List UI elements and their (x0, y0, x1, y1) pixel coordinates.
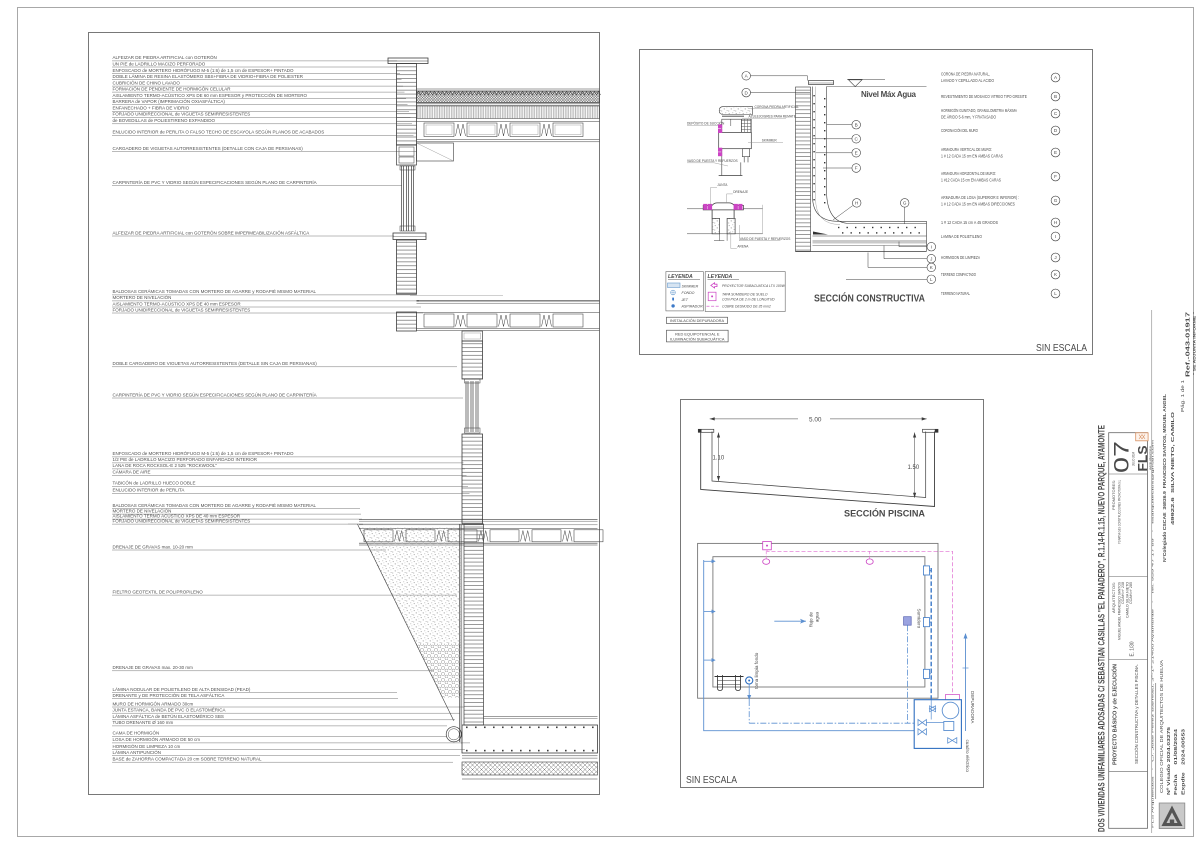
svg-text:ASPIRADOR: ASPIRADOR (681, 305, 704, 309)
svg-text:Fecha 01/08/2024: Fecha 01/08/2024 (1173, 729, 1179, 795)
svg-text:DOBLE CARGADERO DE VIGUETAS AU: DOBLE CARGADERO DE VIGUETAS AUTORRESISTE… (113, 361, 318, 366)
svg-text:ENFANECHADO + FIBRA DE VIDRIO: ENFANECHADO + FIBRA DE VIDRIO (113, 106, 190, 111)
svg-text:N°Colegiado CSCAE 36836.9 FR: N°Colegiado CSCAE 36836.9 FRANCISCO SANT… (1162, 394, 1167, 562)
svg-text:LÁMINA ASFÁLTICA de BETÚN ELAS: LÁMINA ASFÁLTICA de BETÚN ELASTOMÉRICO S… (113, 713, 224, 719)
svg-text:cuadro eléctrico: cuadro eléctrico (965, 740, 970, 773)
svg-text:ALFEIZAR DE PIEDRA ARTIFICIAL: ALFEIZAR DE PIEDRA ARTIFICIAL con GOTERÓ… (113, 54, 217, 60)
svg-text:REVESTIMIENTO DE MOSAICO VITRE: REVESTIMIENTO DE MOSAICO VITREO TIPO GRE… (941, 94, 1027, 99)
svg-text:1/2 PIE de LADRILLO MACIZO PER: 1/2 PIE de LADRILLO MACIZO PERFORADO ENF… (113, 457, 258, 462)
svg-text:1 # 12 CADA 15 cm EN AMBAS CAR: 1 # 12 CADA 15 cm EN AMBAS CARAS (941, 153, 1003, 158)
svg-text:CÁMARA DE AIRE: CÁMARA DE AIRE (113, 469, 151, 475)
svg-text:B: B (855, 122, 858, 127)
svg-text:JET: JET (681, 298, 689, 302)
svg-text:LÁMINA NODULAR DE POLIETILENO: LÁMINA NODULAR DE POLIETILENO DE ALTA DE… (113, 686, 251, 692)
svg-text:BASE de ZAHORRA COMPACTADA 20: BASE de ZAHORRA COMPACTADA 20 cm SOBRE T… (113, 757, 262, 762)
svg-text:PROYECTO BÁSICO y de EJECUCIÓN: PROYECTO BÁSICO y de EJECUCIÓN (1111, 664, 1119, 765)
svg-text:ARENA: ARENA (737, 245, 749, 249)
svg-text:Ref.-043-01917: Ref.-043-01917 (1186, 312, 1192, 377)
svg-text:TAPA SUMIDERO DE SUELO: TAPA SUMIDERO DE SUELO (722, 293, 768, 297)
svg-text:F: F (855, 166, 858, 171)
svg-text:DRENAJE DE GRAVAS max. 10-20 m: DRENAJE DE GRAVAS max. 10-20 mm (113, 544, 194, 549)
svg-text:FONDO: FONDO (682, 291, 695, 295)
svg-text:LAVADO Y CEPILLADO AL ACIDO: LAVADO Y CEPILLADO AL ACIDO (941, 78, 994, 83)
svg-text:J: J (930, 256, 932, 261)
svg-text:1 # 12 CADA 15 cm A 45 GRADOS: 1 # 12 CADA 15 cm A 45 GRADOS (941, 220, 998, 225)
svg-text:'' SE ADJUNTA INFORME '': '' SE ADJUNTA INFORME '' (1193, 312, 1197, 375)
svg-text:LÁMINA ANTIPUNCIÓN: LÁMINA ANTIPUNCIÓN (113, 749, 162, 755)
svg-text:SKIMMER: SKIMMER (682, 284, 699, 288)
svg-text:1.10: 1.10 (713, 456, 725, 462)
svg-text:SKIMMER: SKIMMER (762, 139, 778, 143)
svg-text:F: F (1054, 174, 1057, 179)
svg-text:JUNTA: JUNTA (717, 183, 728, 187)
svg-text:CORONACIÓN DEL MURO: CORONACIÓN DEL MURO (941, 127, 978, 133)
svg-text:FORJADO UNIDIRECCIONAL de VIGU: FORJADO UNIDIRECCIONAL de VIGUETAS SEMIR… (113, 112, 251, 117)
svg-text:DE ÁRIDO 5-6 mm, Y FRATASADO: DE ÁRIDO 5-6 mm, Y FRATASADO (941, 113, 996, 119)
svg-text:Nivel Máx Agua: Nivel Máx Agua (861, 90, 917, 99)
svg-text:G: G (903, 201, 907, 206)
svg-text:flujo de: flujo de (809, 612, 814, 627)
svg-text:CAMA DE HORMIGÓN: CAMA DE HORMIGÓN (113, 730, 160, 736)
svg-text:SIN ESCALA: SIN ESCALA (686, 775, 737, 786)
svg-text:07: 07 (1109, 441, 1133, 473)
svg-text:COBRE DESNUDO DE 35 mm2: COBRE DESNUDO DE 35 mm2 (722, 305, 771, 309)
svg-text:1 # 12 CADA 15 cm EN AMBAS DIR: 1 # 12 CADA 15 cm EN AMBAS DIRECCIONES (941, 201, 1015, 206)
svg-text:MORTERO DE NIVELACIÓN: MORTERO DE NIVELACIÓN (113, 294, 172, 300)
svg-text:DEPURADORA: DEPURADORA (970, 691, 975, 724)
svg-text:HORMIGON DE LIMPIEZA: HORMIGON DE LIMPIEZA (941, 255, 981, 260)
svg-text:SIN ESCALA: SIN ESCALA (1036, 343, 1087, 354)
svg-text:COLEGIO OFICIAL DE ARQUITECTOS: COLEGIO OFICIAL DE ARQUITECTOS DE HUELVA (1159, 659, 1164, 793)
svg-text:TERRENO NATURAL: TERRENO NATURAL (941, 291, 970, 296)
svg-text:FORMACIÓN DE PENDIENTE DE HORM: FORMACIÓN DE PENDIENTE DE HORMIGÓN CELUL… (113, 85, 232, 91)
svg-text:YGNATIA G&S CONSTRUCCIONES PRO: YGNATIA G&S CONSTRUCCIONES PROMOTORA S.L (1118, 480, 1122, 544)
svg-text:DRENANTE y DE PROTECCIÓN DE TE: DRENANTE y DE PROTECCIÓN DE TELA ASFÁLTI… (113, 692, 225, 698)
svg-text:1 #12 CADA 15 cm EN AMBAS CARA: 1 #12 CADA 15 cm EN AMBAS CARAS (941, 177, 1001, 182)
svg-text:LANA DE ROCA ROCKSOL-E 2 525 ": LANA DE ROCA ROCKSOL-E 2 525 "ROCKWOOL" (113, 463, 218, 468)
svg-text:toma limpia fondo: toma limpia fondo (754, 652, 759, 689)
svg-text:VASO DE PUESTA Y REFUERZOS: VASO DE PUESTA Y REFUERZOS (687, 159, 738, 163)
svg-text:L: L (930, 277, 933, 282)
svg-text:ILUMINACIÓN SUBACUÁTICA: ILUMINACIÓN SUBACUÁTICA (670, 336, 725, 341)
svg-text:ARMADURA VERTICAL DE MURO:: ARMADURA VERTICAL DE MURO: (941, 147, 992, 152)
svg-text:I: I (931, 244, 932, 249)
svg-text:E: E (855, 151, 858, 156)
svg-text:COAH nº 285: COAH nº 285 (1129, 582, 1133, 604)
svg-text:DRENAJE DE GRAVAS max. 20-30 m: DRENAJE DE GRAVAS max. 20-30 mm (113, 665, 194, 670)
svg-text:FORJADO UNIDIRECCIONAL de VIGU: FORJADO UNIDIRECCIONAL de VIGUETAS SEMIR… (113, 518, 251, 523)
svg-text:INSTALACIÓN DEPURADORA: INSTALACIÓN DEPURADORA (670, 318, 725, 323)
svg-text:49922.6 SILVA NIETO, CAMILO: 49922.6 SILVA NIETO, CAMILO (1170, 411, 1175, 525)
svg-text:LEYENDA: LEYENDA (668, 274, 693, 280)
svg-text:TUBO DRENANTE Ø 160 mm: TUBO DRENANTE Ø 160 mm (113, 720, 174, 725)
svg-text:B: B (1054, 94, 1057, 99)
svg-text:BARRERA de VAPOR (IMPRIMACIÓN: BARRERA de VAPOR (IMPRIMACIÓN OXIASFÁLTI… (113, 98, 226, 104)
svg-text:ENLUCIDO INTERIOR de PERLITA O: ENLUCIDO INTERIOR de PERLITA O FALSO TEC… (113, 129, 325, 135)
svg-text:DEPÓSITO DE SUCCIÓN: DEPÓSITO DE SUCCIÓN (687, 121, 725, 126)
svg-text:agua: agua (815, 612, 820, 623)
svg-text:1.50: 1.50 (908, 465, 920, 471)
svg-text:ARQUITECTOS:: ARQUITECTOS: (1111, 582, 1116, 613)
svg-text:ENFOSCADO de MORTERO HIDRÓFUGO: ENFOSCADO de MORTERO HIDRÓFUGO M-5 (1:6)… (113, 450, 294, 456)
svg-text:SECCIÓN CONSTRUCTIVA y DETALLE: SECCIÓN CONSTRUCTIVA y DETALLES PISCINA. (1133, 664, 1140, 764)
svg-text:HORMIGÓN GUNITADO, GRANULOMETR: HORMIGÓN GUNITADO, GRANULOMETRIA MÁXIMA (941, 107, 1018, 113)
svg-text:Nº Visado 2024.03275: Nº Visado 2024.03275 (1166, 727, 1172, 795)
svg-text:PROYECTOR SUBACUATICA LTX 100W: PROYECTOR SUBACUATICA LTX 100W (722, 284, 786, 288)
svg-text:BALDOSAS CERÁMICAS TOMADAS CON: BALDOSAS CERÁMICAS TOMADAS CON MORTERO D… (113, 288, 317, 294)
svg-text:CARGADERO DE VIGUETAS AUTORRES: CARGADERO DE VIGUETAS AUTORRESISTENTES (… (113, 146, 304, 151)
svg-text:JULIO 2024: JULIO 2024 (1132, 452, 1136, 466)
svg-text:FIELTRO GEOTEXTIL DE POLIPROPI: FIELTRO GEOTEXTIL DE POLIPROPILENO (113, 589, 204, 594)
svg-text:LEYENDA: LEYENDA (708, 274, 733, 280)
svg-text:L: L (1054, 291, 1057, 296)
svg-text:CORONA PIEDRA ARTIFICIAL: CORONA PIEDRA ARTIFICIAL (755, 105, 799, 109)
svg-text:TABICÓN de LADRILLO HUECO DOBL: TABICÓN de LADRILLO HUECO DOBLE (113, 480, 196, 486)
svg-text:CARPINTERÍA DE PVC Y VIDRIO SE: CARPINTERÍA DE PVC Y VIDRIO SEGÚN ESPECI… (113, 391, 317, 397)
svg-text:TERRENO COMPACTADO: TERRENO COMPACTADO (941, 272, 976, 277)
svg-text:JUNTA ESTANCA, BANDA DE PVC O: JUNTA ESTANCA, BANDA DE PVC O ELASTOMÉRI… (113, 707, 226, 713)
svg-text:PROMOTORES:: PROMOTORES: (1111, 480, 1116, 510)
svg-text:CARPINTERÍA DE PVC Y VIDRIO SE: CARPINTERÍA DE PVC Y VIDRIO SEGÚN ESPECI… (113, 179, 317, 185)
svg-text:E. 1/30: E. 1/30 (1130, 641, 1136, 656)
svg-text:AZULEJO/GRES PARA REMATE: AZULEJO/GRES PARA REMATE (749, 114, 796, 118)
svg-text:H: H (1054, 220, 1057, 225)
svg-text:AISLAMIENTO TERMO-ACÚSTICO XPS: AISLAMIENTO TERMO-ACÚSTICO XPS DE 40 mm … (113, 300, 242, 306)
svg-text:ARMADURA HORIZONTAL DE MURO:: ARMADURA HORIZONTAL DE MURO: (941, 171, 996, 176)
svg-text:CON PICA DE 2 m DE LONGITUD: CON PICA DE 2 m DE LONGITUD (722, 298, 775, 302)
svg-text:ARMADURA DE LOSA (SUPERIOR E I: ARMADURA DE LOSA (SUPERIOR E INFERIOR) : (941, 195, 1019, 200)
svg-text:Sumidero: Sumidero (917, 609, 922, 629)
svg-text:ALFEIZAR DE PIEDRA ARTIFICIAL: ALFEIZAR DE PIEDRA ARTIFICIAL con GOTERÓ… (113, 229, 310, 235)
svg-text:CUBRICIÓN DE CHINO LAVADO: CUBRICIÓN DE CHINO LAVADO (113, 79, 181, 85)
svg-text:ENFOSCADO de MORTERO HIDRÓFUGO: ENFOSCADO de MORTERO HIDRÓFUGO M-5 (1:6)… (113, 67, 294, 73)
svg-text:G: G (1054, 198, 1058, 203)
svg-text:MURO DE HORMIGÓN ARMADO 30cm: MURO DE HORMIGÓN ARMADO 30cm (113, 700, 194, 706)
svg-text:Expdte 2024.00553: Expdte 2024.00553 (1181, 729, 1187, 795)
svg-text:FORJADO UNIDIRECCIONAL de VIGU: FORJADO UNIDIRECCIONAL de VIGUETAS SEMIR… (113, 307, 251, 312)
svg-text:AISLAMIENTO TERMO-ACÚSTICO XPS: AISLAMIENTO TERMO-ACÚSTICO XPS DE 60 mm … (113, 92, 308, 98)
svg-text:de BOVEDILLAS de POLIESTIRENO: de BOVEDILLAS de POLIESTIRENO EXPANDIDO (113, 118, 216, 123)
svg-text:Pág. 1 de 1: Pág. 1 de 1 (1180, 379, 1185, 412)
svg-text:H: H (855, 201, 858, 206)
svg-text:E: E (1054, 150, 1057, 155)
svg-text:HORMIGÓN DE LIMPIEZA 10 cm: HORMIGÓN DE LIMPIEZA 10 cm (113, 743, 181, 749)
svg-text:SECCIÓN CONSTRUCTIVA: SECCIÓN CONSTRUCTIVA (814, 292, 925, 305)
svg-text:LAMINA DE POLIETILENO: LAMINA DE POLIETILENO (941, 234, 982, 239)
svg-text:CORONA DE PIEDRA NATURAL,: CORONA DE PIEDRA NATURAL, (941, 72, 990, 77)
svg-text:SECCIÓN PISCINA: SECCIÓN PISCINA (844, 508, 925, 520)
svg-text:UN PIE de LADRILLO MACIZO PERF: UN PIE de LADRILLO MACIZO PERFORADO (113, 61, 206, 66)
svg-text:ENLUCIDO INTERIOR de PERLITA: ENLUCIDO INTERIOR de PERLITA (113, 488, 185, 493)
svg-text:FLS Arquitectos - C/. José: FLS Arquitectos - C/. José Pérez Barreau… (1151, 439, 1155, 828)
svg-text:I: I (1055, 234, 1056, 239)
svg-text:VASO DE PUESTA Y REFUERZOS: VASO DE PUESTA Y REFUERZOS (740, 237, 791, 241)
svg-text:BALDOSAS CERÁMICAS TOMADAS CON: BALDOSAS CERÁMICAS TOMADAS CON MORTERO D… (113, 502, 317, 508)
svg-text:DOS VIVIENDAS UNIFAMILIARES AD: DOS VIVIENDAS UNIFAMILIARES ADOSADAS C/ … (1097, 425, 1107, 832)
svg-text:5.00: 5.00 (809, 416, 822, 423)
svg-text:LOSA DE HORMIGÓN ARMADO DE 50: LOSA DE HORMIGÓN ARMADO DE 50 cm (113, 736, 201, 742)
svg-text:DOBLE LÁMINA DE RESINA ELASTÓM: DOBLE LÁMINA DE RESINA ELASTÓMERO SBS+FI… (113, 73, 304, 79)
svg-text:DRENAJE: DRENAJE (733, 190, 748, 194)
svg-text:J: J (1054, 255, 1056, 260)
